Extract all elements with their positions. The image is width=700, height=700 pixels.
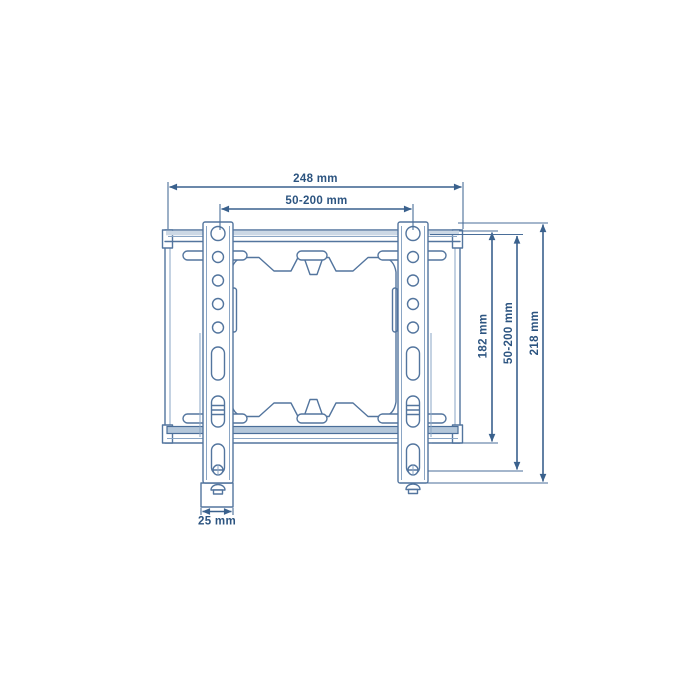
drawing-canvas: 248 mm 50-200 mm 182 mm 50-200 mm: [0, 0, 700, 700]
right-rail-hole: [408, 275, 419, 286]
dimension-label-arm-width: 25 mm: [198, 516, 236, 528]
left-rail-slot: [212, 396, 225, 427]
dimension-arm-width: 25 mm: [198, 508, 236, 528]
dimension-label-total-height: 218 mm: [529, 311, 541, 356]
left-rail-hole: [213, 322, 224, 333]
left-rail: [200, 222, 233, 507]
dimension-label-hole-span-height: 50-200 mm: [503, 302, 515, 364]
dimension-label-hole-span-width: 50-200 mm: [285, 195, 347, 207]
right-rail-hole: [408, 299, 419, 310]
dimension-label-total-width: 248 mm: [293, 173, 338, 185]
wall-mount-technical-drawing: 248 mm 50-200 mm 182 mm 50-200 mm: [0, 0, 700, 700]
dimension-hole-span-width: 50-200 mm: [220, 195, 413, 230]
dimension-label-plate-height: 182 mm: [478, 314, 490, 359]
mounting-slot-bottom-center: [297, 414, 327, 423]
left-rail-slot: [212, 347, 225, 380]
right-foot-screw-neck: [409, 490, 418, 494]
right-foot-screw-dome: [406, 484, 420, 490]
left-foot-screw-neck: [214, 490, 223, 494]
left-rail-hole: [213, 252, 224, 263]
right-rail: [398, 222, 431, 494]
plate-central-cutout: [231, 258, 396, 417]
left-rail-hole: [213, 299, 224, 310]
left-foot-screw-dome: [211, 485, 225, 491]
left-rail-top-hole: [211, 227, 225, 241]
right-rail-slot: [407, 347, 420, 380]
mounting-slot-top-center: [297, 251, 327, 260]
right-rail-slot: [407, 396, 420, 427]
right-rail-hole: [408, 252, 419, 263]
right-rail-hole: [408, 322, 419, 333]
left-rail-hole: [213, 275, 224, 286]
